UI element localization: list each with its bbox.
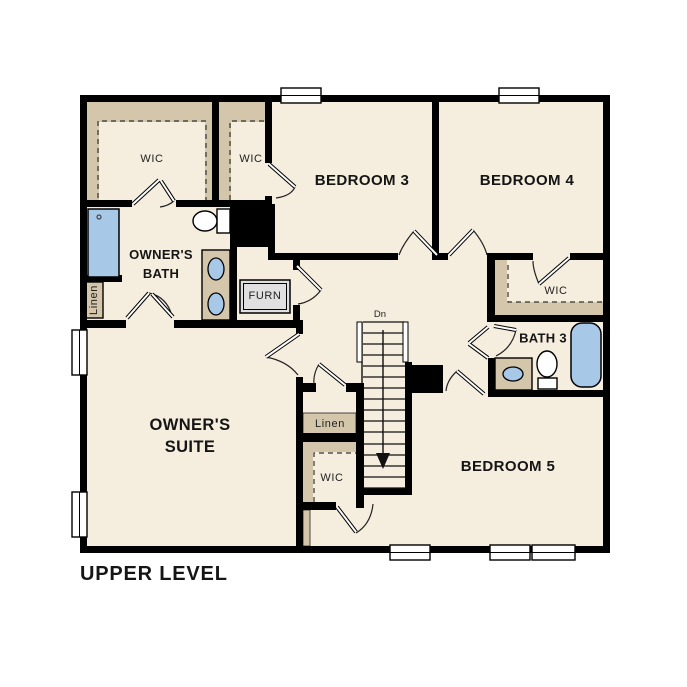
sink (503, 367, 523, 381)
owners-bath-toilet (193, 209, 230, 233)
stair-rail-post-left (357, 322, 362, 362)
bathtub (571, 323, 601, 387)
bedroom4-label: BEDROOM 4 (480, 173, 574, 190)
owners-bath-label-line1: OWNER'S (129, 245, 193, 264)
stairs-down-label: Dn (374, 310, 386, 320)
bedroom3-label: BEDROOM 3 (315, 173, 409, 190)
owners-wic-label: WIC (140, 153, 163, 165)
bedroom5-label: BEDROOM 5 (461, 459, 555, 476)
owners-suite-label: OWNER'S SUITE (150, 414, 231, 458)
shower (88, 209, 119, 277)
floor-plan-page: WIC WIC BEDROOM 3 BEDROOM 4 WIC OWNER'S … (0, 0, 687, 687)
owners-bath-label-line2: BATH (129, 264, 193, 283)
bath3-vanity (495, 358, 532, 390)
linen-left-label: Linen (88, 285, 100, 315)
owners-suite-label-line2: SUITE (150, 436, 231, 458)
linen-hall-label: Linen (315, 418, 345, 430)
owners-bath-vanity (202, 250, 230, 320)
stair-rail-post-right (403, 322, 408, 362)
bath3-toilet (537, 351, 557, 389)
owners-suite-label-line1: OWNER'S (150, 414, 231, 436)
level-title: UPPER LEVEL (80, 563, 228, 586)
sink (208, 258, 224, 280)
bedroom3-wic-label: WIC (239, 153, 262, 165)
hall-wic-label: WIC (320, 472, 343, 484)
owners-bath-label: OWNER'S BATH (129, 245, 193, 283)
bath3-label: BATH 3 (519, 329, 567, 348)
furnace-label: FURN (249, 290, 282, 302)
sink (208, 293, 224, 315)
bedroom4-wic-label: WIC (544, 285, 567, 297)
